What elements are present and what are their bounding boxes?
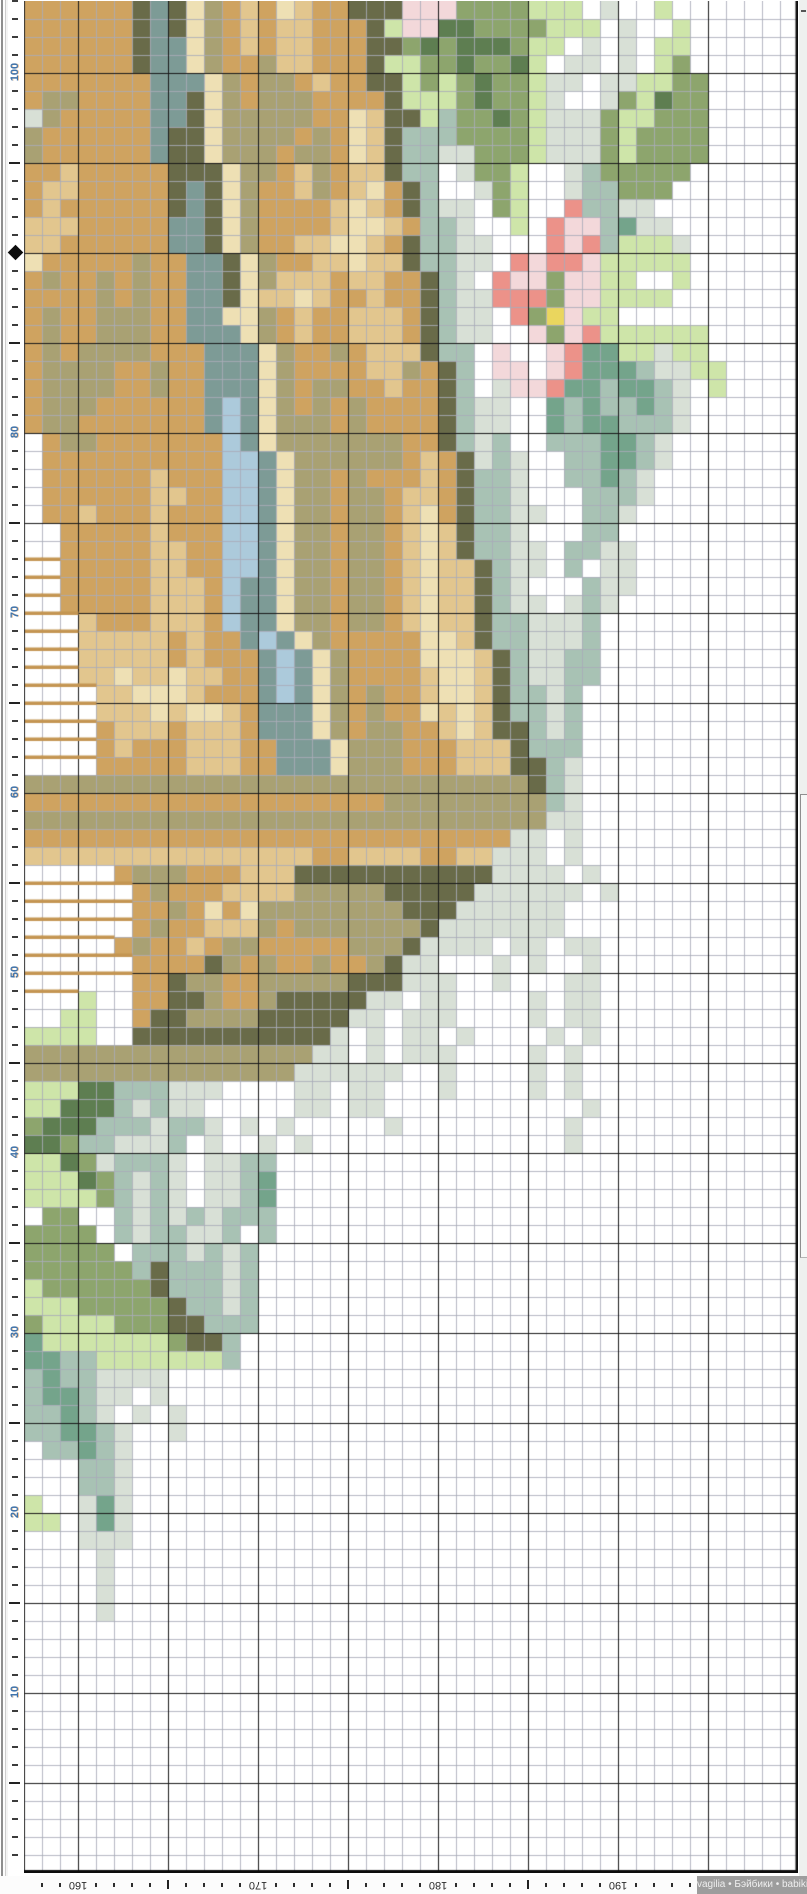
left-ruler-tick <box>12 180 18 182</box>
bottom-ruler-tick <box>563 1883 565 1887</box>
bottom-ruler-tick <box>149 1883 151 1887</box>
left-ruler-label: 100 <box>8 62 22 82</box>
left-ruler-tick <box>12 18 18 20</box>
left-ruler-tick <box>9 1782 20 1784</box>
bottom-ruler-tick <box>509 1883 511 1887</box>
left-ruler-tick <box>12 1386 18 1388</box>
left-ruler-tick <box>12 450 18 452</box>
left-ruler-tick <box>12 504 18 506</box>
left-ruler-tick <box>12 1548 18 1550</box>
left-ruler-tick <box>12 1440 18 1442</box>
bottom-ruler-tick <box>635 1883 637 1887</box>
left-ruler-tick <box>12 306 18 308</box>
left-ruler-label: 60 <box>8 782 22 802</box>
bottom-ruler-tick <box>131 1883 133 1887</box>
bottom-ruler-tick <box>167 1880 169 1889</box>
left-ruler-tick <box>12 540 18 542</box>
bottom-ruler-tick <box>455 1883 457 1887</box>
left-ruler-tick <box>12 1350 18 1352</box>
bottom-ruler-tick <box>545 1883 547 1887</box>
left-ruler-tick <box>12 738 18 740</box>
left-ruler-tick <box>12 1026 18 1028</box>
bottom-ruler-tick <box>653 1883 655 1887</box>
left-ruler-tick <box>12 1458 18 1460</box>
bottom-ruler-tick <box>527 1880 529 1889</box>
left-ruler-tick <box>12 864 18 866</box>
left-ruler-tick <box>12 1854 18 1856</box>
left-ruler-tick <box>12 1566 18 1568</box>
bottom-ruler-label: 190 <box>605 1878 631 1892</box>
left-ruler-tick <box>12 1818 18 1820</box>
left-ruler-tick <box>12 1494 18 1496</box>
left-ruler-tick <box>12 1188 18 1190</box>
left-ruler-tick <box>12 1134 18 1136</box>
bottom-ruler-tick <box>599 1883 601 1887</box>
left-ruler-tick <box>12 1530 18 1532</box>
left-ruler-tick <box>12 198 18 200</box>
bottom-ruler-tick <box>59 1883 61 1887</box>
left-ruler-tick <box>12 1674 18 1676</box>
left-ruler-tick <box>12 126 18 128</box>
left-ruler-label: 70 <box>8 602 22 622</box>
left-ruler-tick <box>12 1224 18 1226</box>
bottom-ruler-tick <box>401 1883 403 1887</box>
left-ruler-tick <box>12 810 18 812</box>
left-ruler-tick <box>12 684 18 686</box>
left-ruler-tick <box>12 1764 18 1766</box>
left-ruler-tick <box>12 396 18 398</box>
left-ruler-tick <box>12 1116 18 1118</box>
bottom-ruler-tick <box>293 1883 295 1887</box>
left-ruler-tick <box>12 1638 18 1640</box>
left-ruler-label: 10 <box>8 1682 22 1702</box>
left-ruler-tick <box>12 144 18 146</box>
bottom-ruler-tick <box>221 1883 223 1887</box>
left-ruler-tick <box>12 414 18 416</box>
bottom-ruler-tick <box>311 1883 313 1887</box>
left-ruler-tick <box>12 990 18 992</box>
left-ruler-tick <box>12 54 18 56</box>
bottom-ruler-tick <box>671 1883 673 1887</box>
window-edge-strip <box>0 0 8 1894</box>
left-ruler-tick <box>12 1584 18 1586</box>
bottom-ruler-tick <box>95 1883 97 1887</box>
left-ruler-tick <box>9 342 20 344</box>
bottom-ruler-tick <box>581 1883 583 1887</box>
left-ruler-tick <box>12 1080 18 1082</box>
left-ruler-tick <box>12 1098 18 1100</box>
left-ruler-tick <box>12 1368 18 1370</box>
left-ruler-tick <box>12 936 18 938</box>
left-ruler-tick <box>12 1746 18 1748</box>
bottom-ruler-tick <box>275 1883 277 1887</box>
left-ruler-tick <box>12 1170 18 1172</box>
bottom-ruler: 160170180190200 <box>0 1876 807 1894</box>
left-ruler-tick <box>12 0 18 2</box>
left-ruler-tick <box>12 288 18 290</box>
left-ruler-tick <box>12 1044 18 1046</box>
left-ruler-label: 30 <box>8 1322 22 1342</box>
left-ruler-tick <box>9 1062 20 1064</box>
left-ruler-tick <box>12 1800 18 1802</box>
bottom-ruler-label: 170 <box>245 1878 271 1892</box>
left-ruler-tick <box>12 234 18 236</box>
left-ruler-tick <box>12 324 18 326</box>
left-ruler-tick <box>12 360 18 362</box>
left-ruler-tick <box>12 576 18 578</box>
left-ruler-tick <box>12 666 18 668</box>
bottom-ruler-tick <box>689 1883 691 1887</box>
left-ruler-tick <box>9 882 20 884</box>
bottom-ruler-tick <box>113 1883 115 1887</box>
bottom-ruler-tick <box>203 1883 205 1887</box>
left-ruler-tick <box>12 954 18 956</box>
left-ruler-label: 80 <box>8 422 22 442</box>
left-ruler-tick <box>12 900 18 902</box>
center-marker-icon <box>8 245 24 261</box>
left-ruler-tick <box>12 486 18 488</box>
bottom-ruler-tick <box>419 1883 421 1887</box>
bottom-ruler-tick <box>365 1883 367 1887</box>
left-ruler-tick <box>12 468 18 470</box>
bottom-ruler-tick <box>473 1883 475 1887</box>
left-ruler-tick <box>12 1476 18 1478</box>
bottom-ruler-tick <box>239 1883 241 1887</box>
left-ruler-tick <box>12 1314 18 1316</box>
left-ruler-tick <box>9 1602 20 1604</box>
pattern-viewer-window: 1020304050607080100 160170180190200 vagi… <box>0 0 807 1894</box>
left-ruler-tick <box>12 846 18 848</box>
left-ruler-tick <box>9 1422 20 1424</box>
left-ruler-label: 40 <box>8 1142 22 1162</box>
bottom-ruler-label: 180 <box>425 1878 451 1892</box>
left-ruler-tick <box>12 90 18 92</box>
left-ruler-tick <box>12 1296 18 1298</box>
left-ruler-tick <box>12 756 18 758</box>
left-ruler-tick <box>12 828 18 830</box>
side-panel-edge <box>800 794 807 1258</box>
left-ruler-tick <box>12 108 18 110</box>
left-ruler-tick <box>12 1008 18 1010</box>
left-ruler-tick <box>12 594 18 596</box>
left-ruler-tick <box>12 1278 18 1280</box>
left-ruler-tick <box>12 558 18 560</box>
left-ruler-tick <box>12 216 18 218</box>
pattern-grid[interactable] <box>24 1 798 1873</box>
margin-tick <box>801 10 806 12</box>
left-ruler-tick <box>9 702 20 704</box>
left-ruler-tick <box>12 378 18 380</box>
bottom-ruler-label: 160 <box>65 1878 91 1892</box>
left-ruler-tick <box>12 1404 18 1406</box>
left-ruler-tick <box>12 1836 18 1838</box>
bottom-ruler-tick <box>329 1883 331 1887</box>
left-ruler-tick <box>9 1242 20 1244</box>
bottom-ruler-tick <box>41 1883 43 1887</box>
left-ruler-tick <box>12 1260 18 1262</box>
left-ruler-tick <box>12 1206 18 1208</box>
left-ruler-tick <box>12 630 18 632</box>
left-ruler-tick <box>12 36 18 38</box>
left-ruler-tick <box>12 1656 18 1658</box>
left-ruler-label: 50 <box>8 962 22 982</box>
left-ruler-tick <box>9 162 20 164</box>
bottom-ruler-tick <box>491 1883 493 1887</box>
left-ruler-tick <box>12 1728 18 1730</box>
left-ruler-label: 20 <box>8 1502 22 1522</box>
left-ruler-tick <box>12 270 18 272</box>
left-ruler-tick <box>12 1710 18 1712</box>
bottom-ruler-tick <box>185 1883 187 1887</box>
left-ruler-tick <box>12 648 18 650</box>
bottom-ruler-tick <box>347 1880 349 1889</box>
bottom-ruler-tick <box>383 1883 385 1887</box>
left-ruler-tick <box>12 1620 18 1622</box>
watermark: vagilia • Бэйбики • babiki <box>697 1876 807 1894</box>
left-ruler-tick <box>12 918 18 920</box>
left-ruler-tick <box>9 522 20 524</box>
left-ruler: 1020304050607080100 <box>8 0 24 1876</box>
left-ruler-tick <box>12 774 18 776</box>
left-ruler-tick <box>12 720 18 722</box>
